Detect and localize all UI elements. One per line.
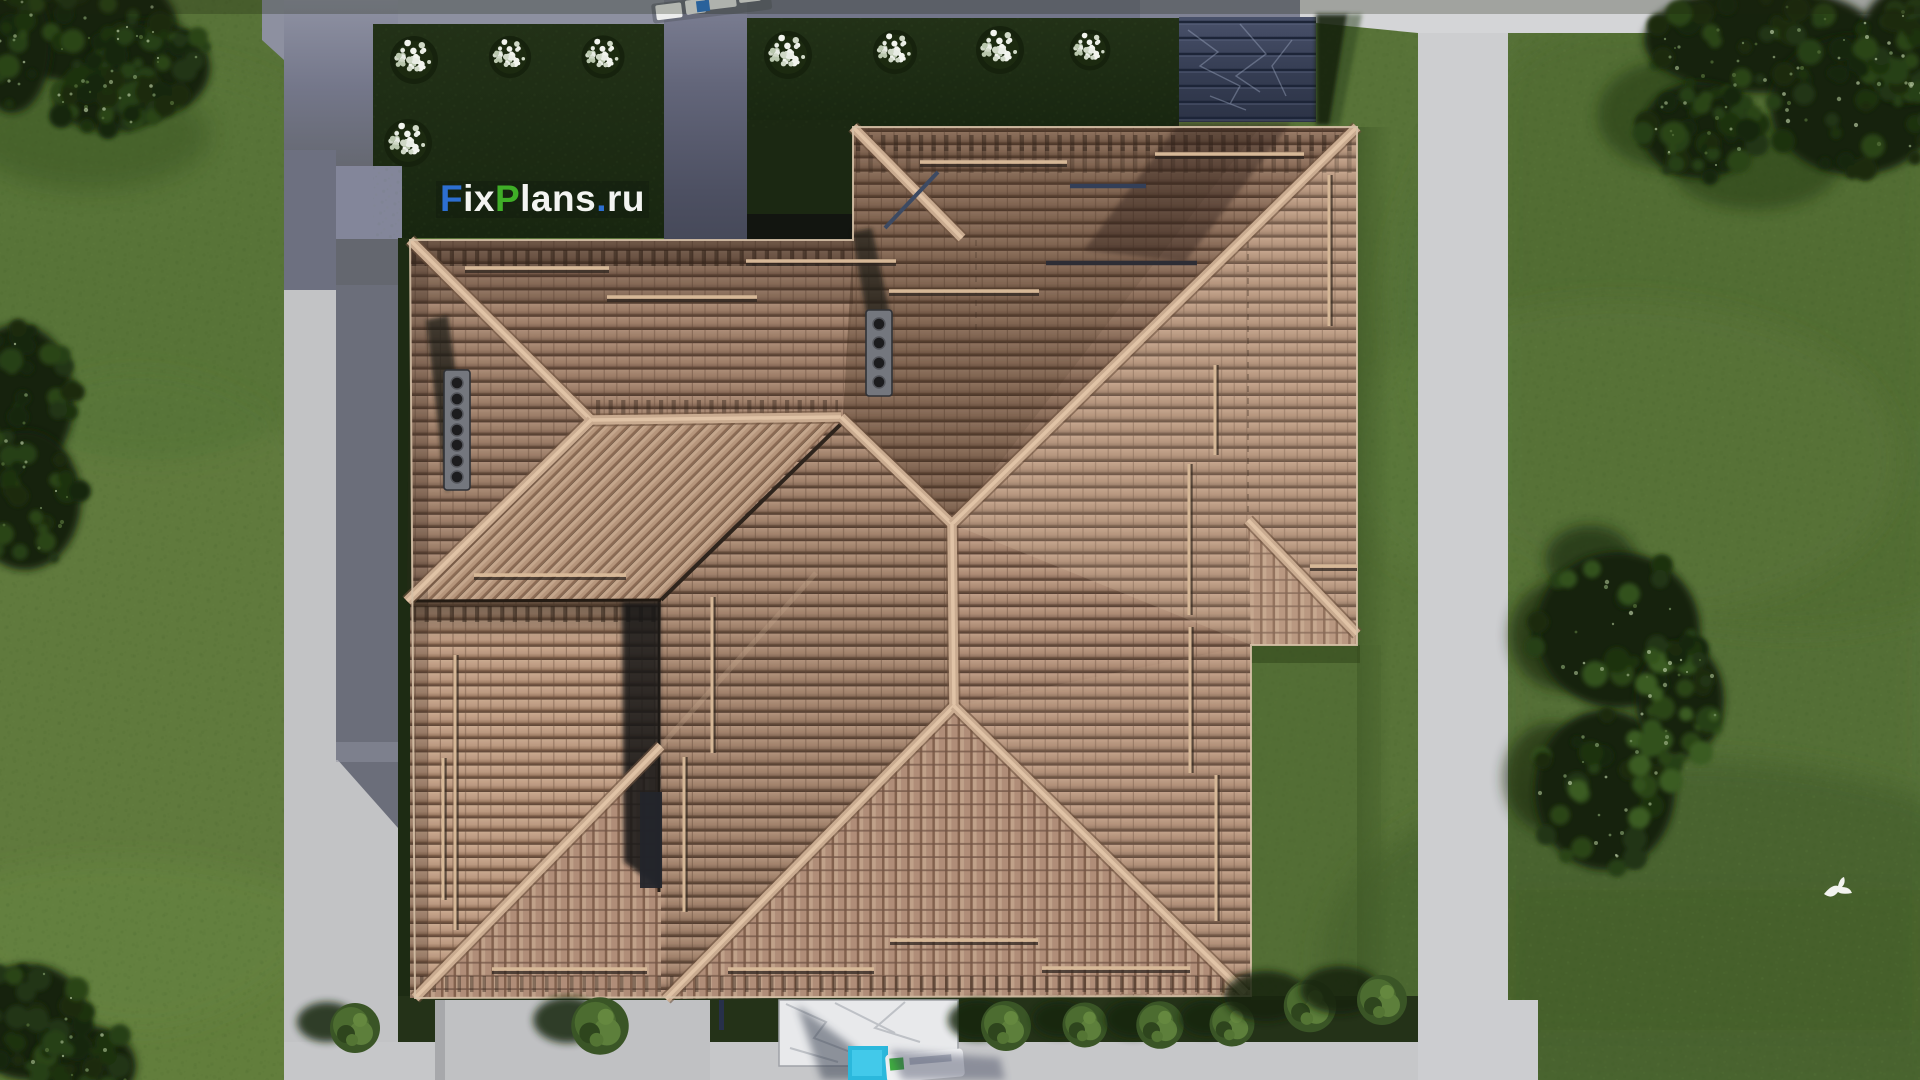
svg-text:FixPlans.ru: FixPlans.ru xyxy=(440,178,645,219)
